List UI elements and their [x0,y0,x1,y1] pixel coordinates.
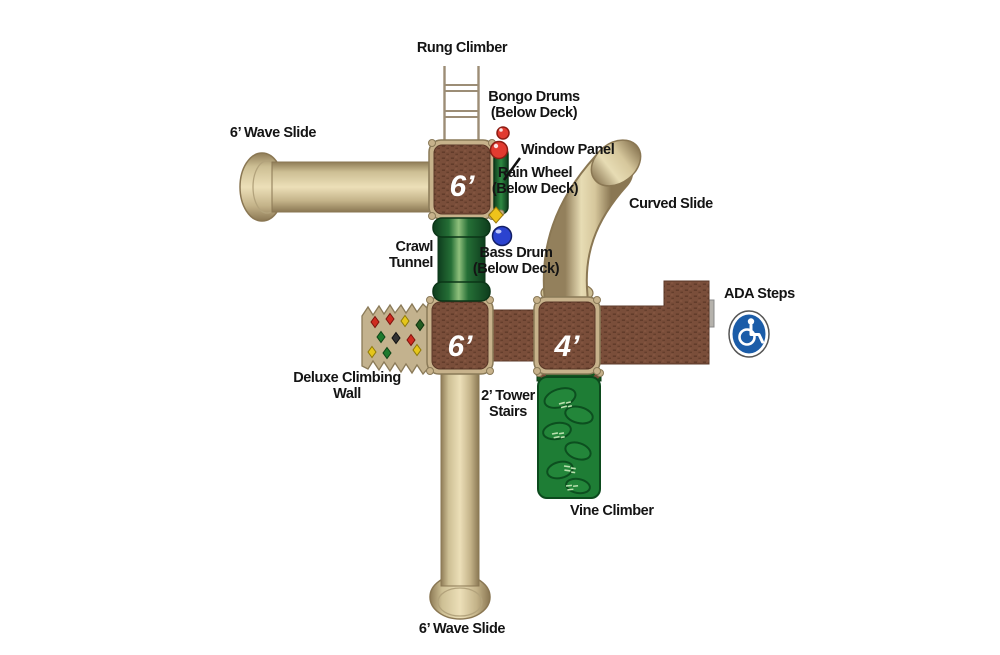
bass-drum-label-line2: (Below Deck) [457,262,575,278]
bass-drum-label: Bass Drum (Below Deck) [457,246,575,277]
wave-slide-top-label: 6’ Wave Slide [213,126,333,142]
crawl-tunnel-label-line2: Tunnel [353,256,433,272]
tower-stairs-label-line2: Stairs [458,405,558,421]
wave-slide-bottom-label: 6’ Wave Slide [402,622,522,638]
deluxe-climbing-wall-label-line2: Wall [287,387,407,403]
rain-wheel-label: Rain Wheel (Below Deck) [477,166,593,197]
ada-wheelchair-icon [729,311,769,357]
bass-drum-label-line1: Bass Drum [457,246,575,262]
ada-steps-platform [598,281,714,364]
playground-plan-diagram: 6’ 6’ 4’ [0,0,1000,655]
deck-bridge [488,310,536,361]
deck-lower-left: 6’ [427,297,494,375]
bongo-drums-label: Bongo Drums (Below Deck) [475,90,593,121]
tower-stairs-label-line1: 2’ Tower [458,389,558,405]
window-panel-label: Window Panel [521,143,614,159]
bongo-drums-icon [491,127,510,159]
rung-climber-shape [444,66,479,140]
rain-wheel-label-line1: Rain Wheel [477,166,593,182]
deck-lower-right-size: 4’ [553,330,580,363]
deck-top-size: 6’ [449,170,475,203]
crawl-tunnel-label: Crawl Tunnel [353,240,433,271]
deluxe-climbing-wall-label: Deluxe Climbing Wall [287,371,407,402]
crawl-tunnel-label-line1: Crawl [353,240,433,256]
deluxe-climbing-wall-label-line1: Deluxe Climbing [287,371,407,387]
bass-drum-icon [493,227,512,246]
deck-lower-left-size: 6’ [447,330,473,363]
rain-wheel-label-line2: (Below Deck) [477,182,593,198]
bongo-drums-label-line1: Bongo Drums [475,90,593,106]
wave-slide-top-shape [240,153,432,221]
vine-climber-label: Vine Climber [570,504,654,520]
curved-slide-label: Curved Slide [629,197,713,213]
bongo-drums-label-line2: (Below Deck) [475,106,593,122]
rung-climber-label: Rung Climber [400,41,524,57]
climbing-wall-shape [362,304,430,374]
ada-steps-label: ADA Steps [724,287,795,303]
tower-stairs-label: 2’ Tower Stairs [458,389,558,420]
deck-lower-right: 4’ [534,297,601,375]
